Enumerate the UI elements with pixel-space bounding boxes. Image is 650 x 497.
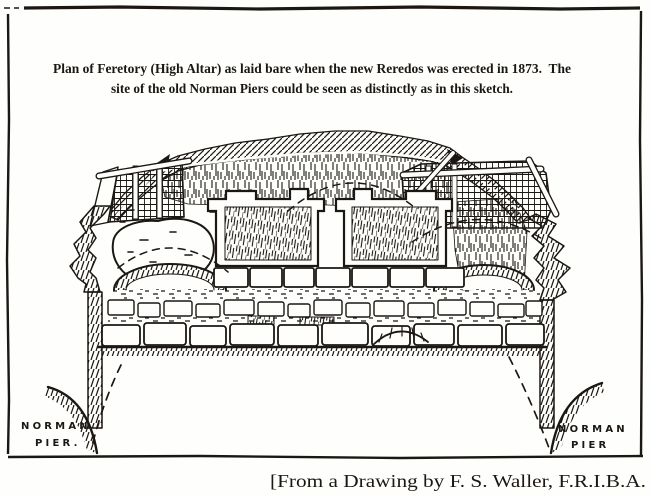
pier-foundation-right xyxy=(336,189,452,266)
attribution-caption: [From a Drawing by F. S. Waller, F.R.I.B… xyxy=(270,471,646,491)
norman-pier-label-left-line1: NORMAN xyxy=(21,421,91,432)
left-wall-strip xyxy=(88,292,102,428)
caption-line2: site of the old Norman Piers could be se… xyxy=(111,81,513,96)
masonry-course-middle xyxy=(108,300,542,317)
norman-pier-label-left: NORMAN PIER. xyxy=(21,421,91,449)
norman-pier-label-right-line2: PIER xyxy=(571,440,609,451)
norman-pier-label-right-line1: NORMAN xyxy=(558,424,628,435)
figure-caption: Plan of Feretory (High Altar) as laid ba… xyxy=(53,61,571,96)
right-wall-strip xyxy=(540,300,554,428)
base-line xyxy=(98,347,546,356)
figure-plate: NORMAN PIER. NORMAN PIER Plan of Feretor… xyxy=(0,0,650,497)
feretory-plan-drawing: NORMAN PIER. NORMAN PIER xyxy=(21,131,628,453)
masonry-course-upper xyxy=(214,268,464,287)
left-grille-panel xyxy=(90,161,189,226)
norman-pier-label-left-line2: PIER. xyxy=(35,438,81,449)
caption-line1: Plan of Feretory (High Altar) as laid ba… xyxy=(53,61,571,76)
rubble-fringe xyxy=(112,289,540,299)
masonry-course-lower xyxy=(102,323,544,346)
pier-foundation-left xyxy=(208,189,324,266)
norman-pier-label-right: NORMAN PIER xyxy=(558,424,628,451)
